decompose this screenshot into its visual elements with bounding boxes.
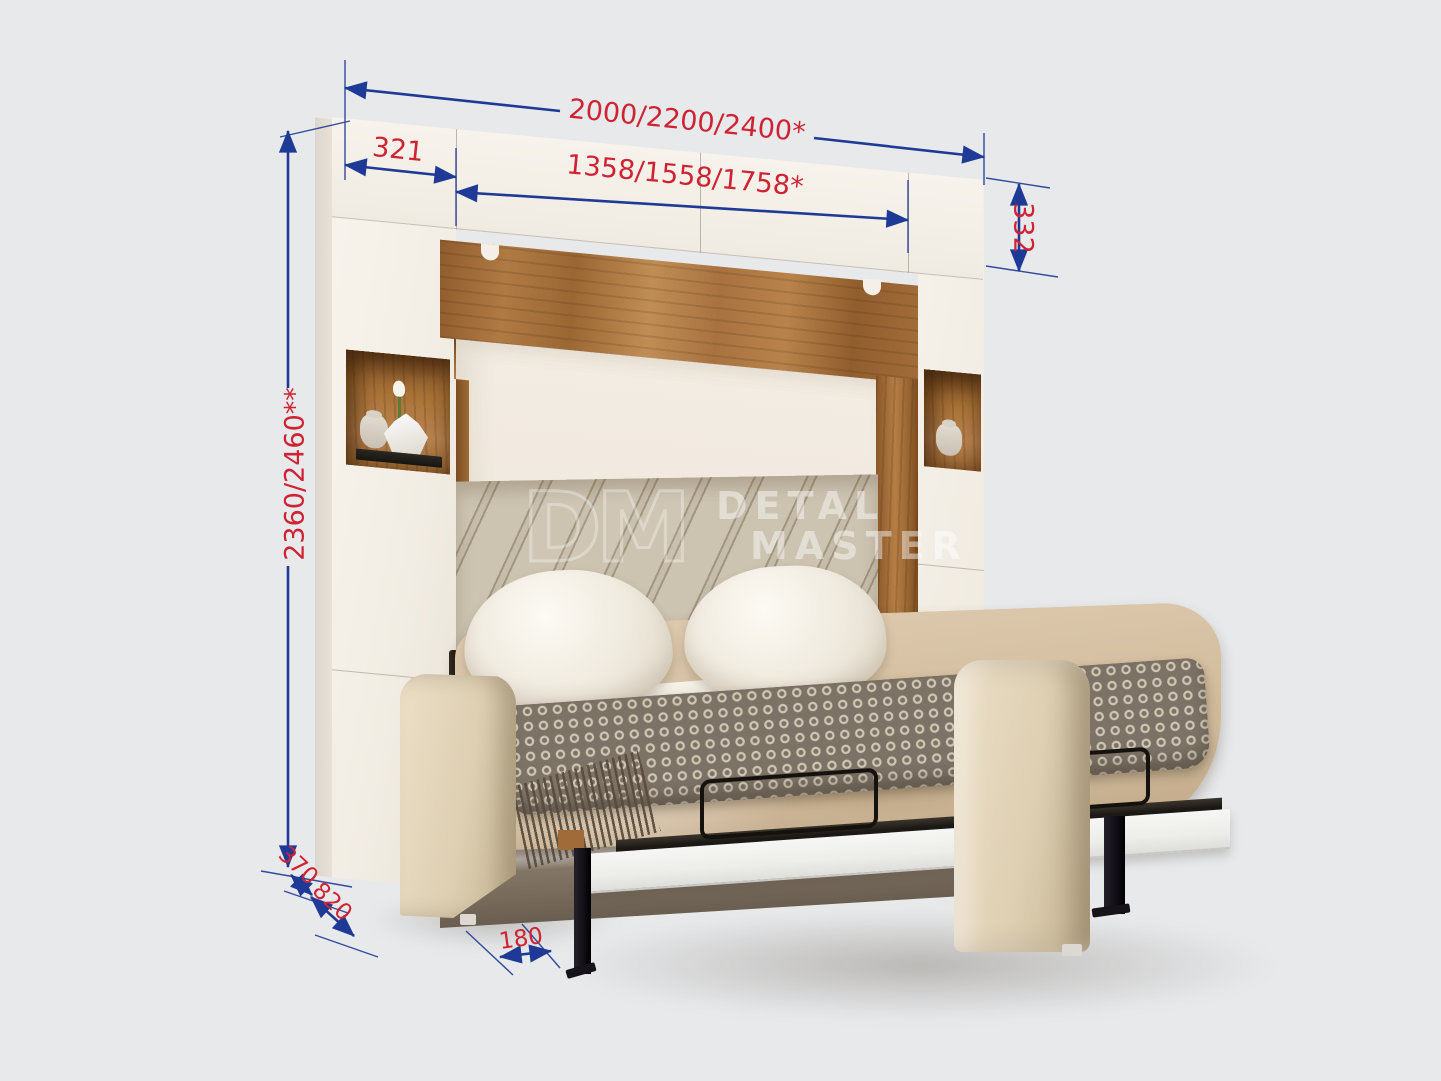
dim-label-left-column-width: 321 — [371, 132, 426, 168]
product-render-scene: DM DETAL MASTER — [0, 0, 1441, 1081]
dim-label-total-height: 2360/2460** — [280, 387, 311, 561]
dim-label-top-cabinet-height: 332 — [1008, 202, 1039, 254]
dimension-lines — [0, 0, 1441, 1081]
